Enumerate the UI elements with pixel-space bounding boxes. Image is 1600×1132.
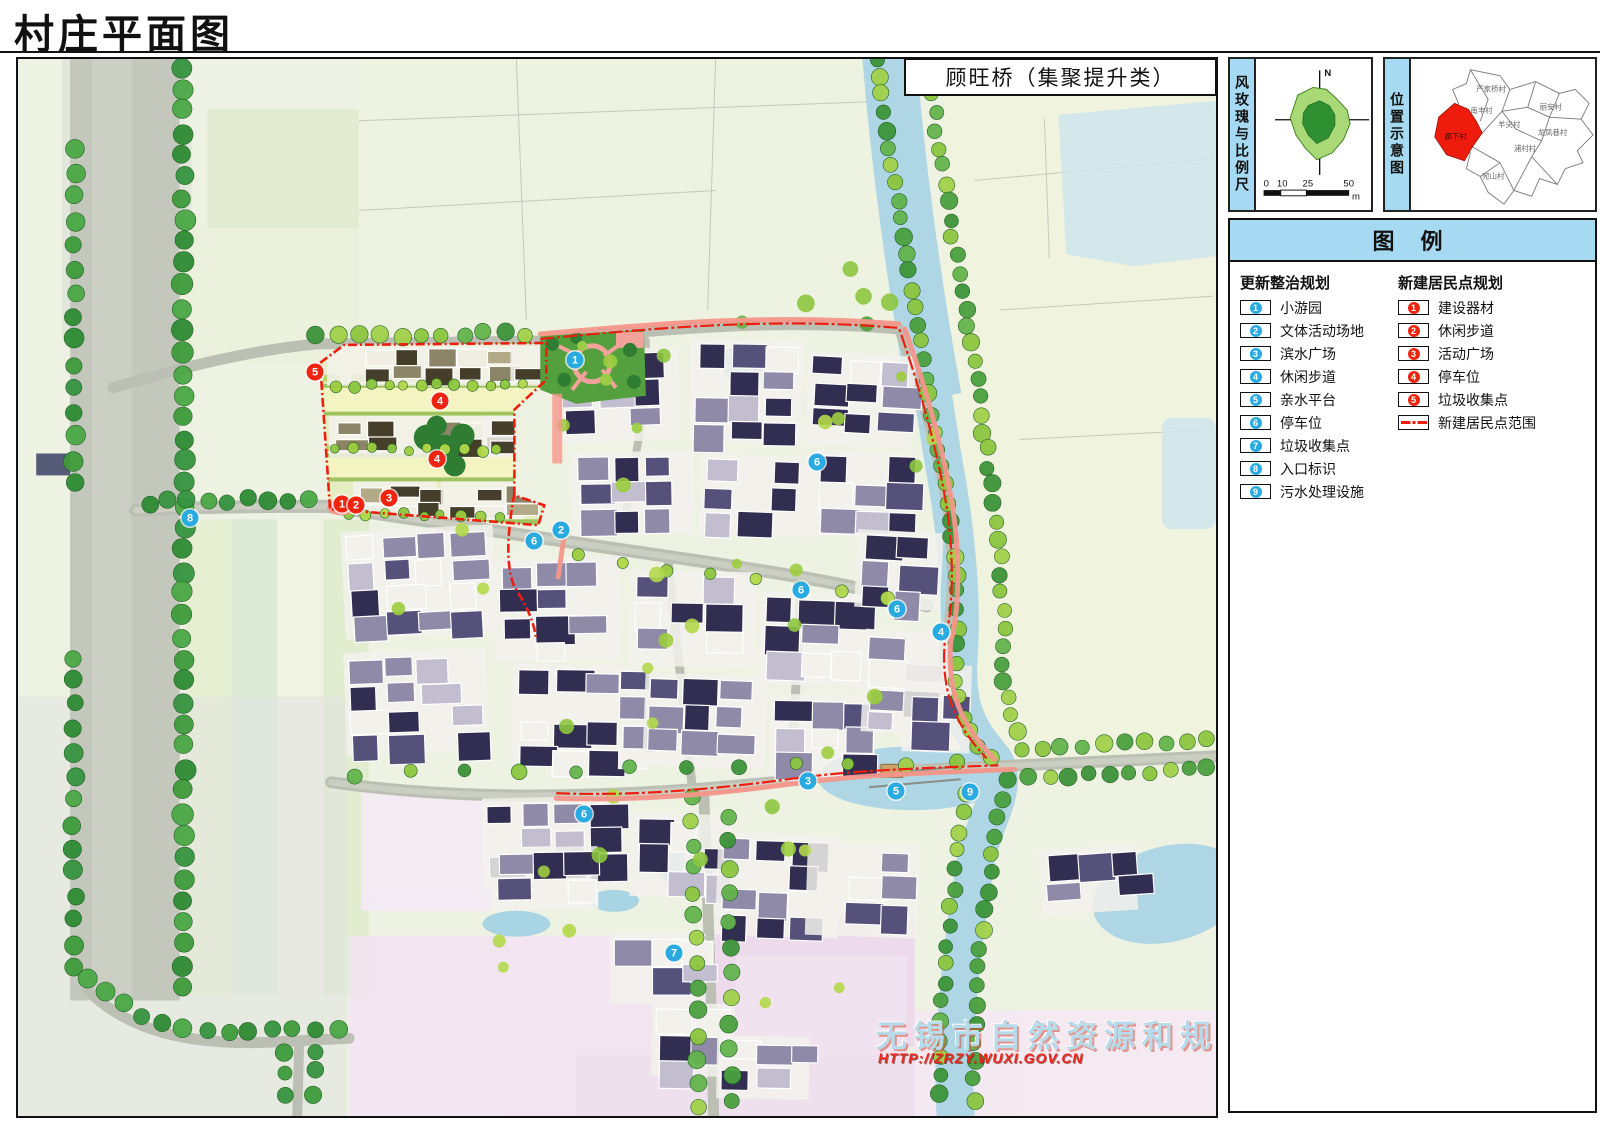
north-label: N: [1324, 68, 1331, 79]
village-label: 浦村村: [1514, 143, 1537, 153]
location-map: 严家桥村 南丰村 丽安村 羊尖村 龙凤巷村 浦村村 宛山村 廊下村: [1411, 59, 1595, 210]
map-marker-renewal: 6: [793, 582, 810, 599]
svg-text:25: 25: [1303, 178, 1314, 189]
svg-text:0: 0: [1264, 178, 1269, 189]
windrose-graphic: N 0 10 25 50 m: [1256, 59, 1371, 210]
legend-item: 8入口标识: [1240, 461, 1398, 476]
legend-item: 2休闲步道: [1398, 323, 1587, 338]
village-label: 羊尖村: [1498, 119, 1521, 129]
village-label: 南丰村: [1470, 105, 1493, 115]
map-marker-renewal: 7: [666, 945, 683, 962]
legend-item: 1建设器材: [1398, 300, 1587, 315]
map-marker-renewal: 6: [809, 454, 826, 471]
legend-col-renewal: 更新整治规划 1小游园 2文体活动场地 3滨水广场 4休闲步道 5亲水平台 6停…: [1240, 272, 1398, 507]
legend-item: 7垃圾收集点: [1240, 438, 1398, 453]
windrose-panel-label: 风玫瑰与比例尺: [1230, 59, 1256, 210]
legend-item: 1小游园: [1240, 300, 1398, 315]
village-label: 宛山村: [1482, 171, 1505, 181]
map-canvas: [18, 59, 1216, 1116]
location-panel: 位置示意图 严家桥村 南丰村 丽安村 羊尖村 龙凤巷村 浦村村 宛山村 廊下村: [1383, 57, 1597, 212]
map-marker-renewal: 8: [182, 510, 199, 527]
village-label: 严家桥村: [1476, 83, 1506, 93]
map-marker-new: 2: [348, 497, 365, 514]
watermark-url: HTTP://ZRZY.WUXI.GOV.CN: [878, 1050, 1084, 1066]
scale-unit: m: [1352, 192, 1360, 203]
windrose-panel: 风玫瑰与比例尺 N 0 10 25 50 m: [1228, 57, 1373, 212]
legend-item: 5亲水平台: [1240, 392, 1398, 407]
map-title-text: 顾旺桥（集聚提升类）: [946, 62, 1176, 92]
legend-item: 6停车位: [1240, 415, 1398, 430]
legend-new-title: 新建居民点规划: [1398, 272, 1587, 293]
legend-item: 5垃圾收集点: [1398, 392, 1587, 407]
map-marker-renewal: 3: [800, 773, 817, 790]
map-marker-new: 4: [429, 451, 446, 468]
village-plan-map: 1268666435967544312 无锡市自然资源和规划局 HTTP://Z…: [16, 57, 1218, 1118]
map-marker-renewal: 2: [553, 522, 570, 539]
map-marker-renewal: 5: [888, 783, 905, 800]
legend-item: 3活动广场: [1398, 346, 1587, 361]
legend-renewal-title: 更新整治规划: [1240, 272, 1398, 293]
map-marker-renewal: 6: [526, 533, 543, 550]
scale-bar: 0 10 25 50 m: [1264, 178, 1360, 202]
page: 村庄平面图 1268666435967544312 无锡市自然资源和规划局 HT…: [0, 0, 1600, 1132]
legend-item: 4休闲步道: [1240, 369, 1398, 384]
village-label: 龙凤巷村: [1538, 127, 1568, 137]
legend-item: 4停车位: [1398, 369, 1587, 384]
map-marker-new: 5: [307, 364, 324, 381]
map-marker-renewal: 6: [889, 601, 906, 618]
legend-item: 3滨水广场: [1240, 346, 1398, 361]
map-marker-new: 3: [381, 490, 398, 507]
map-marker-renewal: 6: [576, 806, 593, 823]
map-marker-renewal: 1: [567, 352, 584, 369]
legend-panel: 图 例 更新整治规划 1小游园 2文体活动场地 3滨水广场 4休闲步道 5亲水平…: [1228, 218, 1597, 1113]
svg-text:50: 50: [1343, 178, 1354, 189]
legend-header: 图 例: [1230, 220, 1595, 262]
legend-item-range: 新建居民点范围: [1398, 415, 1587, 430]
location-panel-label: 位置示意图: [1385, 59, 1411, 210]
map-marker-renewal: 4: [933, 624, 950, 641]
legend-item: 9污水处理设施: [1240, 484, 1398, 499]
map-marker-new: 4: [432, 393, 449, 410]
map-title-box: 顾旺桥（集聚提升类）: [904, 58, 1217, 96]
legend-item: 2文体活动场地: [1240, 323, 1398, 338]
village-label: 丽安村: [1540, 101, 1563, 111]
title-rule: [0, 51, 1600, 53]
legend-col-new-area: 新建居民点规划 1建设器材 2休闲步道 3活动广场 4停车位 5垃圾收集点 新建…: [1398, 272, 1587, 507]
boundary-line-symbol: [1401, 421, 1427, 424]
map-marker-renewal: 9: [962, 784, 979, 801]
village-label-highlight: 廊下村: [1445, 131, 1468, 141]
svg-text:10: 10: [1277, 178, 1288, 189]
